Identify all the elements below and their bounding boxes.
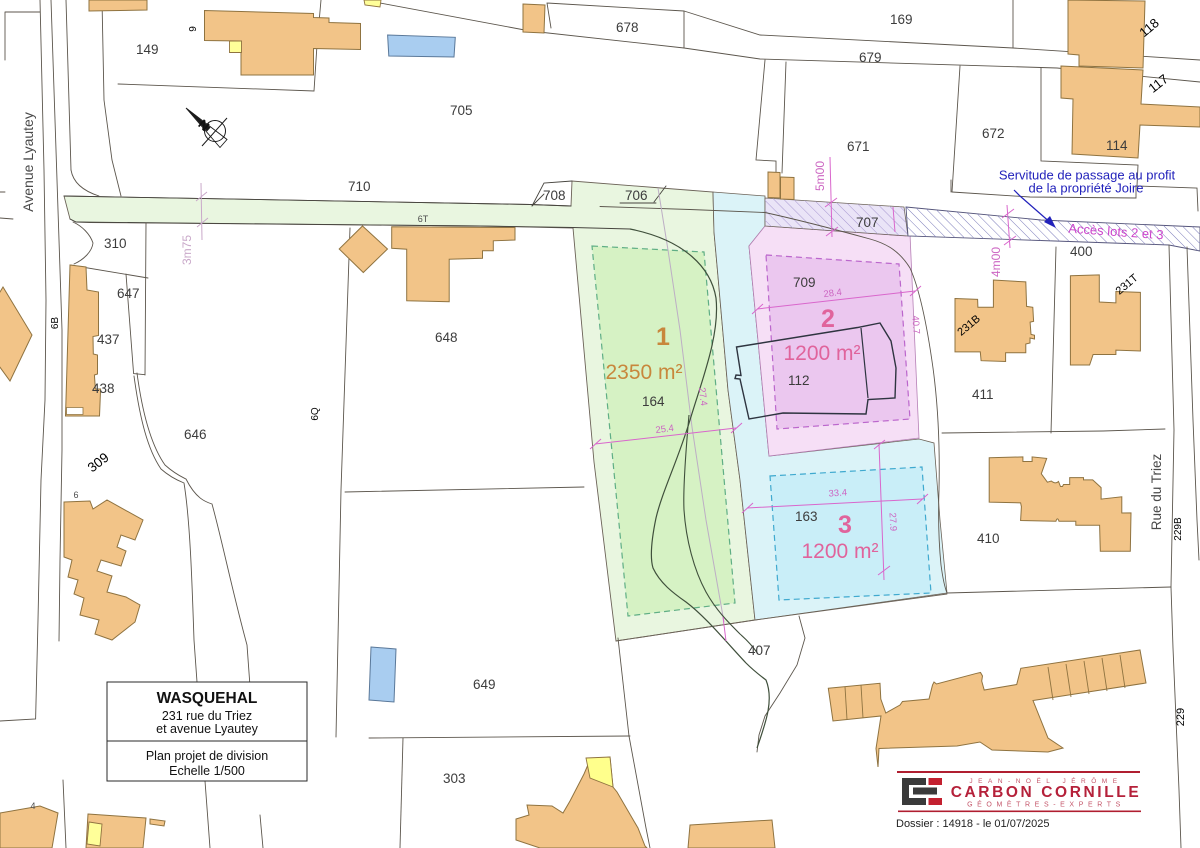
svg-text:6: 6 [73, 490, 78, 500]
svg-text:310: 310 [104, 236, 127, 251]
svg-text:4: 4 [30, 801, 35, 811]
svg-text:WASQUEHAL: WASQUEHAL [157, 690, 258, 707]
svg-text:CARBON CORNILLE: CARBON CORNILLE [951, 784, 1142, 801]
svg-text:1200 m²: 1200 m² [801, 540, 878, 563]
svg-text:303: 303 [443, 771, 466, 786]
svg-text:de la propriété Joire: de la propriété Joire [1029, 181, 1144, 196]
svg-text:707: 707 [856, 215, 879, 230]
svg-text:4m00: 4m00 [989, 247, 1003, 277]
svg-text:649: 649 [473, 677, 496, 692]
svg-text:407: 407 [748, 643, 771, 658]
svg-text:647: 647 [117, 286, 140, 301]
svg-text:40.7: 40.7 [909, 315, 921, 334]
svg-text:1200 m²: 1200 m² [783, 342, 860, 365]
svg-text:5m00: 5m00 [813, 161, 827, 191]
svg-text:646: 646 [184, 427, 207, 442]
svg-text:411: 411 [972, 387, 994, 402]
svg-text:709: 709 [793, 275, 816, 290]
svg-text:438: 438 [92, 381, 115, 396]
svg-text:27.9: 27.9 [887, 512, 899, 531]
svg-text:708: 708 [543, 188, 566, 203]
svg-text:Plan projet de division: Plan projet de division [146, 749, 268, 763]
svg-text:25.4: 25.4 [655, 423, 675, 436]
svg-text:Echelle 1/500: Echelle 1/500 [169, 764, 245, 778]
svg-text:400: 400 [1070, 244, 1093, 259]
svg-text:672: 672 [982, 126, 1005, 141]
svg-text:2350 m²: 2350 m² [605, 361, 682, 384]
svg-text:6T: 6T [418, 214, 429, 224]
svg-text:9: 9 [188, 26, 199, 32]
svg-text:1: 1 [656, 323, 670, 351]
svg-text:27.4: 27.4 [696, 387, 709, 407]
svg-text:2: 2 [821, 305, 835, 333]
svg-text:706: 706 [625, 188, 648, 203]
svg-text:6B: 6B [50, 317, 61, 330]
svg-text:149: 149 [136, 42, 159, 57]
svg-text:169: 169 [890, 12, 913, 27]
svg-text:710: 710 [348, 179, 371, 194]
svg-text:Avenue Lyautey: Avenue Lyautey [20, 112, 36, 212]
svg-text:Rue du Triez: Rue du Triez [1149, 453, 1164, 530]
svg-text:437: 437 [97, 332, 120, 347]
svg-text:28.4: 28.4 [823, 287, 843, 300]
svg-text:GÉOMÈTRES-EXPERTS: GÉOMÈTRES-EXPERTS [967, 800, 1125, 809]
svg-text:679: 679 [859, 50, 882, 65]
svg-text:3m75: 3m75 [180, 235, 194, 265]
svg-text:671: 671 [847, 139, 870, 154]
svg-text:410: 410 [977, 531, 1000, 546]
svg-text:Dossier : 14918 - le 01/07/202: Dossier : 14918 - le 01/07/2025 [896, 818, 1050, 830]
svg-text:705: 705 [450, 103, 473, 118]
svg-text:231 rue du Triez: 231 rue du Triez [162, 709, 252, 723]
svg-text:648: 648 [435, 330, 458, 345]
svg-text:229: 229 [1175, 708, 1187, 726]
svg-text:et avenue Lyautey: et avenue Lyautey [156, 722, 258, 736]
svg-text:163: 163 [795, 509, 818, 524]
svg-text:678: 678 [616, 20, 639, 35]
svg-text:6Q: 6Q [310, 407, 321, 421]
svg-text:3: 3 [838, 511, 852, 539]
svg-text:114: 114 [1106, 138, 1128, 153]
svg-text:33.4: 33.4 [828, 487, 847, 499]
svg-text:164: 164 [642, 394, 665, 409]
svg-text:229B: 229B [1173, 517, 1184, 541]
svg-text:112: 112 [788, 373, 810, 388]
